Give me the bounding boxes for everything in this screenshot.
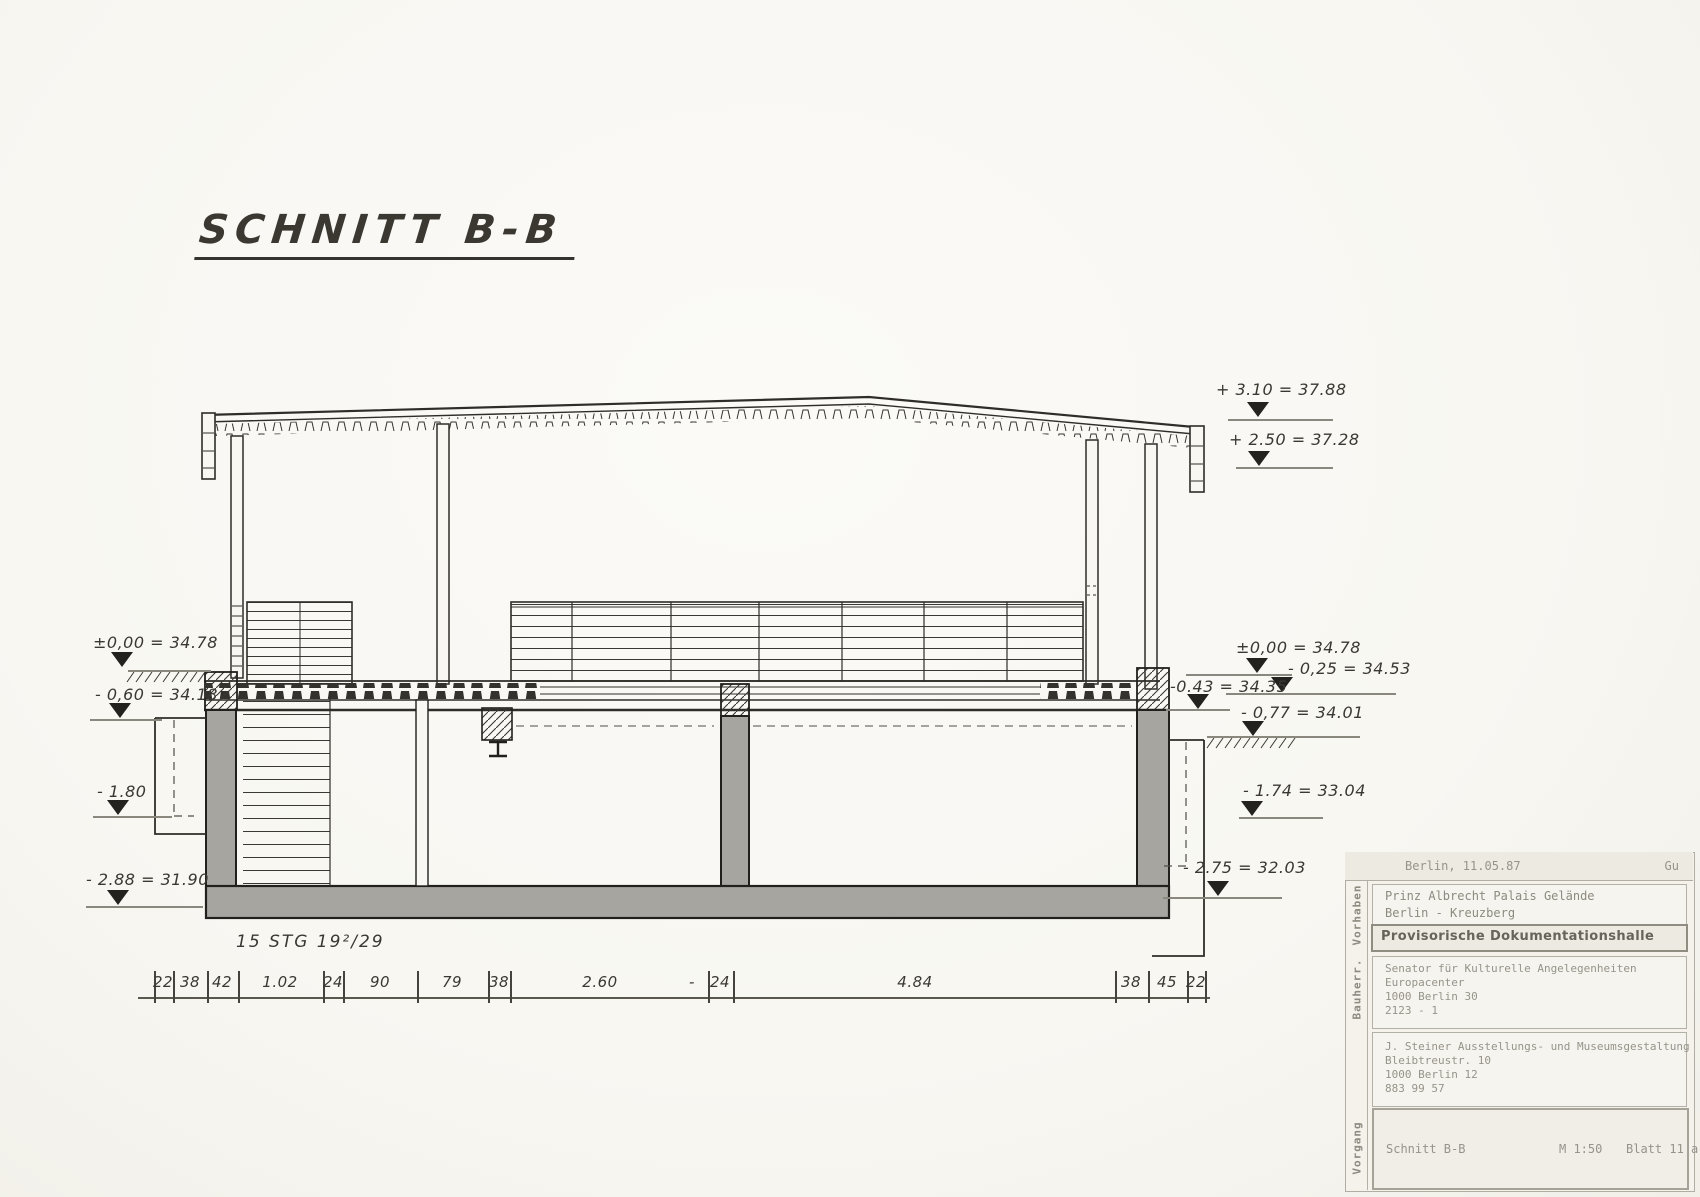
elevation-level-line (1228, 419, 1333, 421)
dimension-label: 2.60 (582, 973, 617, 991)
dimension-tick (343, 971, 345, 1003)
dimension-label: 38 (180, 973, 200, 991)
dimension-label: 22 (1186, 973, 1206, 991)
designer-box: J. Steiner Ausstellungs- und Museumsgest… (1372, 1032, 1687, 1107)
title-block-header-row: Berlin, 11.05.87 Gu (1345, 852, 1693, 881)
dimension-label: 79 (442, 973, 462, 991)
elevation-label: + 2.50 = 37.28 (1229, 430, 1360, 449)
dimension-tick (1148, 971, 1150, 1003)
project-line2: Berlin - Kreuzberg (1373, 905, 1686, 922)
elevation-triangle-icon (109, 703, 131, 718)
elevation-level-line (1166, 709, 1230, 711)
dimension-tick (510, 971, 512, 1003)
elevation-triangle-icon (1207, 881, 1229, 896)
elevation-triangle-icon (1246, 658, 1268, 673)
elevation-level-line (1236, 467, 1333, 469)
title-block-divider (1367, 880, 1368, 1190)
elevation-level-line (1163, 897, 1282, 899)
dimension-tick (1115, 971, 1117, 1003)
elevation-triangle-icon (111, 652, 133, 667)
dimension-tick (207, 971, 209, 1003)
dimension-tick (733, 971, 735, 1003)
elevation-triangle-icon (107, 890, 129, 905)
elevation-triangle-icon (1241, 801, 1263, 816)
client-line: 2123 - 1 (1373, 1004, 1686, 1018)
elevation-triangle-icon (1247, 402, 1269, 417)
elevation-level-line (128, 670, 211, 672)
elevation-label: - 0,77 = 34.01 (1241, 703, 1364, 722)
elevation-label: - 0,25 = 34.53 (1288, 659, 1411, 678)
bauherr-label: Bauherr. (1351, 959, 1364, 1020)
elevation-triangle-icon (1248, 451, 1270, 466)
dimension-tick (173, 971, 175, 1003)
vorhaben-label: Vorhaben (1351, 885, 1364, 946)
sheet-drawing-name: Schnitt B-B (1386, 1142, 1465, 1156)
elevation-label: - 2.88 = 31.90 (86, 870, 209, 889)
elevation-label: + 3.10 = 37.88 (1216, 380, 1347, 399)
drawing-date: Berlin, 11.05.87 (1405, 859, 1521, 873)
dimension-label: 4.84 (897, 973, 932, 991)
dimension-label: 24 (710, 973, 730, 991)
dimension-tick (417, 971, 419, 1003)
dimension-label: 38 (1121, 973, 1141, 991)
elevation-label: ±0,00 = 34.78 (93, 633, 218, 652)
dimension-label: 22 (153, 973, 173, 991)
dimension-label: 38 (489, 973, 509, 991)
project-title-box: Provisorische Dokumentationshalle (1371, 924, 1688, 952)
elevation-label: - 1.80 (97, 782, 146, 801)
elevation-level-line (93, 816, 172, 818)
dimension-tick (238, 971, 240, 1003)
drawing-initials: Gu (1665, 859, 1679, 873)
elevation-label: - 0,60 = 34.18 (95, 685, 218, 704)
elevation-label: - 1.74 = 33.04 (1243, 781, 1366, 800)
client-line: Senator für Kulturelle Angelegenheiten (1373, 962, 1686, 976)
project-title: Provisorische Dokumentationshalle (1381, 929, 1654, 944)
designer-line: Bleibtreustr. 10 (1373, 1054, 1686, 1068)
dimension-label: 42 (212, 973, 232, 991)
elevation-label: ±0,00 = 34.78 (1236, 638, 1361, 657)
project-box: Prinz Albrecht Palais Gelände Berlin - K… (1372, 884, 1687, 927)
sheet-info-box: Schnitt B-B M 1:50 Blatt 11 a (1372, 1108, 1689, 1190)
elevation-level-line (86, 906, 203, 908)
dimension-label: 45 (1157, 973, 1177, 991)
elevation-triangle-icon (107, 800, 129, 815)
sheet-number: Blatt 11 a (1626, 1142, 1698, 1156)
client-line: Europacenter (1373, 976, 1686, 990)
sheet-paper: SCHNITT B-B 15 STG 19²/29 ±0,00 = 34.78-… (0, 0, 1700, 1197)
elevation-label: - 2.75 = 32.03 (1183, 858, 1306, 877)
dimension-label: - (689, 973, 695, 991)
vorgang-label: Vorgang (1351, 1121, 1364, 1174)
sheet-scale: M 1:50 (1559, 1142, 1602, 1156)
designer-line: 883 99 57 (1373, 1082, 1686, 1096)
dimension-label: 90 (370, 973, 390, 991)
elevation-level-line (1239, 817, 1323, 819)
dimension-line (138, 997, 1210, 999)
dimension-label: 24 (323, 973, 343, 991)
client-box: Senator für Kulturelle Angelegenheiten E… (1372, 956, 1687, 1029)
elevation-level-line (1186, 674, 1292, 676)
designer-line: J. Steiner Ausstellungs- und Museumsgest… (1373, 1040, 1686, 1054)
elevation-triangle-icon (1187, 694, 1209, 709)
elevation-level-line (90, 719, 162, 721)
elevation-level-line (1207, 736, 1360, 738)
designer-line: 1000 Berlin 12 (1373, 1068, 1686, 1082)
project-line1: Prinz Albrecht Palais Gelände (1373, 888, 1686, 905)
dimension-label: 1.02 (262, 973, 297, 991)
client-line: 1000 Berlin 30 (1373, 990, 1686, 1004)
elevation-triangle-icon (1242, 721, 1264, 736)
